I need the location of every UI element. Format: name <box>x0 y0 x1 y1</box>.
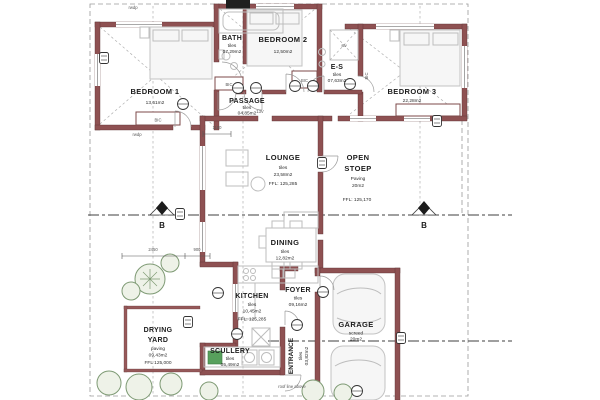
wall-tag-badge <box>397 333 406 344</box>
svg-text:tiles: tiles <box>226 356 235 362</box>
room-label-foyer: FOYER tiles 09,16m2 <box>285 287 311 308</box>
svg-text:09,16m2: 09,16m2 <box>289 302 308 308</box>
svg-text:FFL 125,000: FFL 125,000 <box>144 360 171 366</box>
svg-text:tiles: tiles <box>228 43 237 49</box>
svg-text:DRYING: DRYING <box>144 327 173 334</box>
svg-text:E-S: E-S <box>331 64 344 71</box>
svg-text:13,61m2: 13,61m2 <box>146 100 165 106</box>
dim-1100: 1100 <box>212 125 222 130</box>
bed-1 <box>150 27 212 79</box>
svg-text:tiles: tiles <box>248 302 257 308</box>
svg-text:screed: screed <box>349 331 364 337</box>
room-label-entrance: ENTRANCE tiles 03,82m2 <box>288 337 310 374</box>
door-badge <box>308 81 319 92</box>
door-badge <box>178 99 189 110</box>
wall-tag-badge <box>176 209 185 220</box>
bic-label: BIC <box>155 118 162 123</box>
svg-text:tiles: tiles <box>294 296 303 302</box>
dim-900: 900 <box>194 247 202 252</box>
svg-text:OPEN: OPEN <box>347 153 370 162</box>
room-label-stoep: OPEN STOEP Paving 20m2 FFL: 125,170 <box>343 153 372 203</box>
section-marker-left: B <box>150 201 174 230</box>
room-labels: BEDROOM 1 13,61m2 BEDROOM 2 12,50m2 BEDR… <box>130 35 436 374</box>
svg-text:10,45m2: 10,45m2 <box>243 309 262 315</box>
svg-text:paving: paving <box>151 346 165 352</box>
svg-text:GARAGE: GARAGE <box>338 320 373 329</box>
section-letter: B <box>159 221 165 230</box>
svg-text:12,82m2: 12,82m2 <box>276 256 295 262</box>
door-badge <box>233 83 244 94</box>
svg-text:09,43m2: 09,43m2 <box>149 353 168 359</box>
room-label-bedroom1: BEDROOM 1 13,61m2 <box>130 87 179 106</box>
floor-plan-drawing: B B 2450 900 1100 13V rwdp rwdp roof lin… <box>0 0 600 400</box>
svg-text:STOEP: STOEP <box>344 164 371 173</box>
svg-text:22,28m2: 22,28m2 <box>403 98 422 104</box>
bic-label: BIC <box>364 73 369 80</box>
svg-text:05,49m2: 05,49m2 <box>221 362 240 368</box>
svg-text:BATH: BATH <box>222 35 242 42</box>
greenery <box>97 254 352 400</box>
bic-label: BIC <box>301 78 308 83</box>
room-label-kitchen: KITCHEN tiles 10,45m2 FFL: 125,285 <box>235 293 268 323</box>
svg-text:03,82m2: 03,82m2 <box>304 346 310 365</box>
door-badge <box>318 287 329 298</box>
door-badge <box>352 386 363 397</box>
svg-text:FFL: 125,170: FFL: 125,170 <box>343 197 372 203</box>
door-badge <box>292 320 303 331</box>
room-label-bedroom3: BEDROOM 3 22,28m2 <box>387 87 436 104</box>
bic-closet-bed3 <box>396 104 460 116</box>
svg-text:Paving: Paving <box>351 176 366 182</box>
svg-text:20m2: 20m2 <box>350 337 362 343</box>
svg-text:BEDROOM 2: BEDROOM 2 <box>258 35 307 44</box>
note-rwdp: rwdp <box>132 132 142 137</box>
svg-text:KITCHEN: KITCHEN <box>235 293 268 300</box>
door-badge <box>251 83 262 94</box>
svg-text:LOUNGE: LOUNGE <box>266 153 300 162</box>
wall-tag-badge <box>318 158 327 169</box>
wall-tag-badges <box>100 53 442 344</box>
geyser-block <box>226 0 250 9</box>
svg-text:PASSAGE: PASSAGE <box>229 98 265 105</box>
wall-tag-badge <box>100 53 109 64</box>
door-badge <box>213 288 224 299</box>
wall-tag-badge <box>433 116 442 127</box>
svg-text:tiles: tiles <box>281 249 290 255</box>
room-label-bath: BATH tiles 07,29m2 <box>222 35 242 55</box>
svg-text:tiles: tiles <box>279 165 288 171</box>
svg-text:DINING: DINING <box>271 238 300 247</box>
svg-text:07,29m2: 07,29m2 <box>223 49 242 55</box>
svg-text:07,63m2: 07,63m2 <box>328 78 347 84</box>
svg-text:20m2: 20m2 <box>352 183 364 189</box>
note-roofline: roof line above <box>278 384 306 389</box>
note-rwdp: rwdp <box>128 5 138 10</box>
room-label-lounge: LOUNGE tiles 23,58m2 FFL: 125,285 <box>266 153 300 187</box>
room-label-es: E-S tiles 07,63m2 <box>328 64 347 84</box>
svg-text:ENTRANCE: ENTRANCE <box>288 337 295 374</box>
door-badge <box>290 81 301 92</box>
svg-text:04,85m2: 04,85m2 <box>238 111 257 117</box>
svg-text:tiles: tiles <box>298 351 304 360</box>
section-marker-right: B <box>412 201 436 230</box>
svg-text:SCULLERY: SCULLERY <box>210 348 250 355</box>
wall-tag-badge <box>184 317 193 328</box>
svg-text:FFL: 125,285: FFL: 125,285 <box>238 317 267 323</box>
room-label-dining: DINING tiles 12,82m2 <box>271 238 300 262</box>
section-letter: B <box>421 221 427 230</box>
dim-2450: 2450 <box>148 247 158 252</box>
svg-text:YARD: YARD <box>148 337 168 344</box>
svg-text:tiles: tiles <box>333 72 342 78</box>
svg-text:tiles: tiles <box>243 105 252 111</box>
svg-text:BEDROOM 3: BEDROOM 3 <box>387 87 436 96</box>
shower-label: stv <box>341 43 347 48</box>
svg-text:FFL: 125,285: FFL: 125,285 <box>269 181 298 187</box>
bic-label: BIC <box>226 82 233 87</box>
note-13v: 13V <box>256 109 264 114</box>
svg-text:23,58m2: 23,58m2 <box>274 172 293 178</box>
door-badge <box>232 329 243 340</box>
svg-text:FOYER: FOYER <box>285 287 311 294</box>
room-label-drying-yard: DRYING YARD paving 09,43m2 FFL 125,000 <box>144 327 173 366</box>
svg-text:BEDROOM 1: BEDROOM 1 <box>130 87 179 96</box>
svg-text:12,50m2: 12,50m2 <box>274 49 293 55</box>
bed-3 <box>400 30 460 86</box>
floor-plan-canvas: B B 2450 900 1100 13V rwdp rwdp roof lin… <box>0 0 600 400</box>
